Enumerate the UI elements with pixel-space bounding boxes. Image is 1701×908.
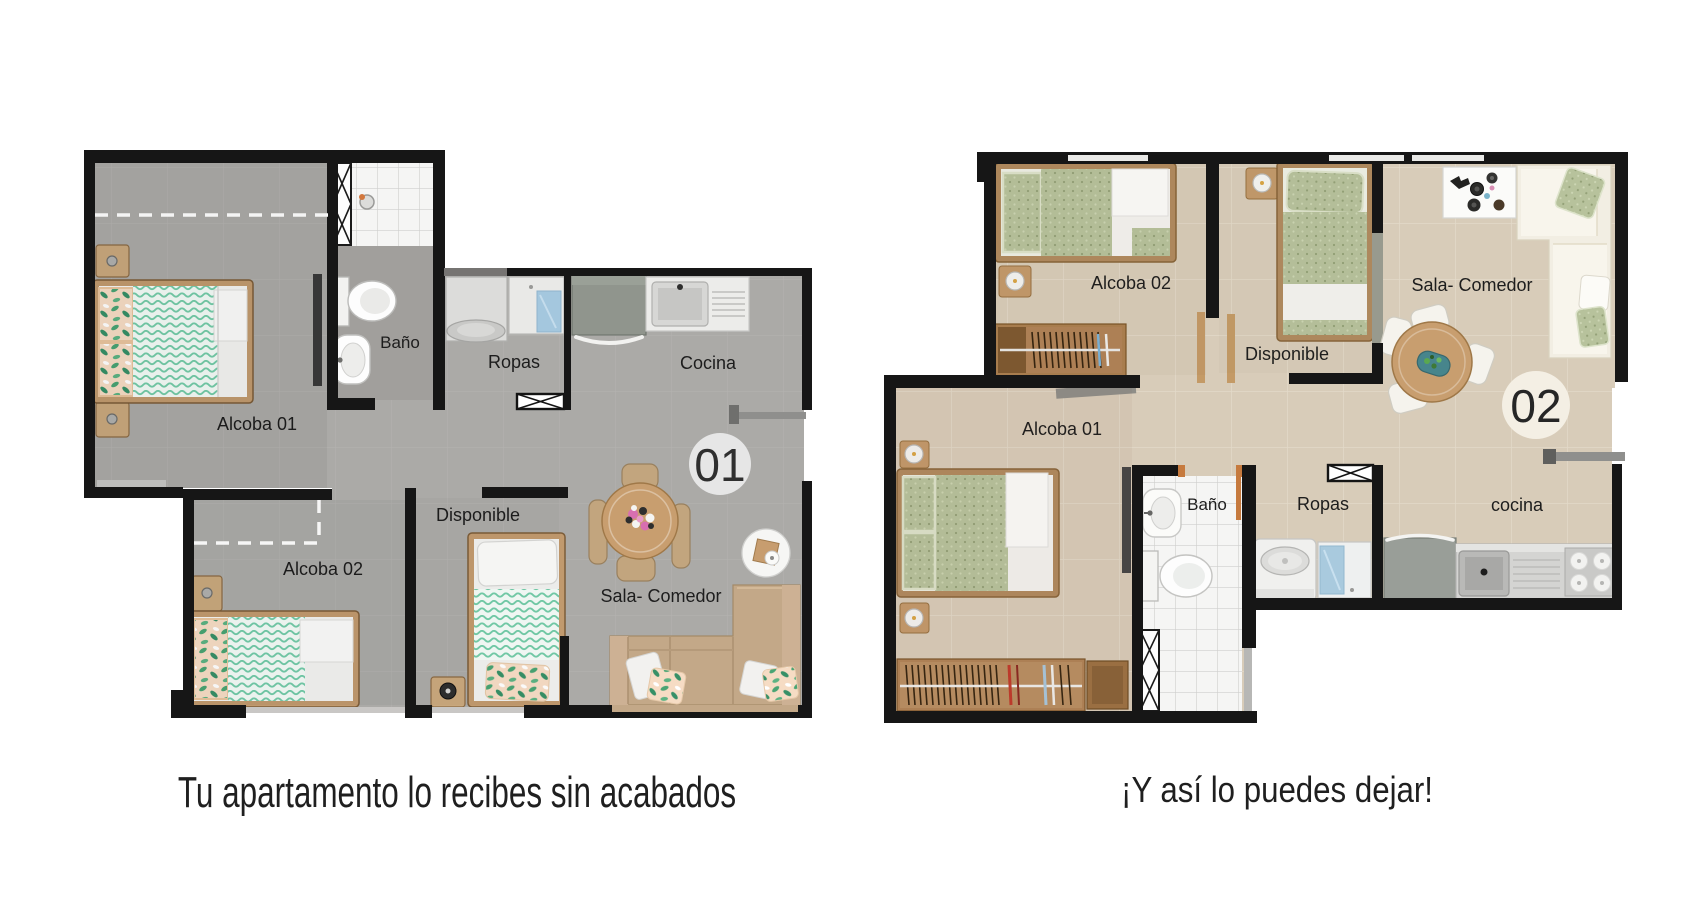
svg-text:02: 02 xyxy=(1510,380,1561,432)
svg-text:Ropas: Ropas xyxy=(1297,494,1349,514)
svg-text:Baño: Baño xyxy=(380,333,420,352)
svg-text:cocina: cocina xyxy=(1491,495,1544,515)
svg-text:¡Y así lo puedes dejar!: ¡Y así lo puedes dejar! xyxy=(1121,770,1433,811)
svg-text:Tu apartamento lo recibes sin: Tu apartamento lo recibes sin acabados xyxy=(178,768,736,817)
svg-text:Ropas: Ropas xyxy=(488,352,540,372)
svg-text:Cocina: Cocina xyxy=(680,353,737,373)
svg-text:Sala- Comedor: Sala- Comedor xyxy=(1411,275,1532,295)
svg-text:Baño: Baño xyxy=(1187,495,1227,514)
svg-text:Sala- Comedor: Sala- Comedor xyxy=(600,586,721,606)
svg-text:01: 01 xyxy=(694,439,745,491)
